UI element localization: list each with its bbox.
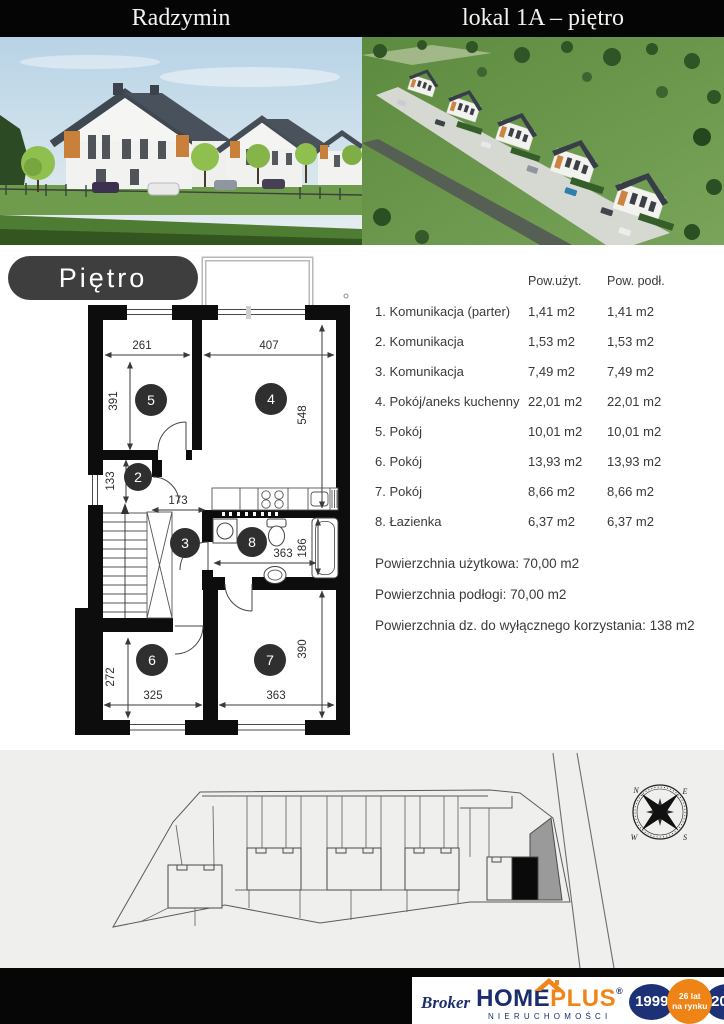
summary-floor-area: Powierzchnia podłogi: 70,00 m2	[375, 587, 566, 602]
compass-w: W	[631, 833, 639, 842]
roof-icon	[534, 978, 564, 991]
cloud	[20, 55, 160, 69]
flyer-page: Radzymin lokal 1A – piętro	[0, 0, 724, 1024]
footer-bar: Broker HOMEPLUS® NIERUCHOMOŚCI 1999 26 l…	[0, 968, 724, 1024]
broker-label: Broker	[421, 993, 470, 1013]
table-row: 8. Łazienka6,37 m26,37 m2	[375, 506, 720, 536]
col-header-uzyt: Pow.użyt.	[528, 274, 607, 288]
summary-usable-area: Powierzchnia użytkowa: 70,00 m2	[375, 556, 579, 571]
aerial-view-photo	[362, 37, 724, 245]
kitchen-sink	[311, 492, 328, 506]
room-5-number: 5	[147, 392, 155, 408]
chimney	[150, 85, 159, 95]
compass-e: E	[682, 787, 688, 796]
plan-marker	[344, 294, 348, 298]
summary-exclusive-area: Powierzchnia dz. do wyłącznego korzystan…	[375, 618, 695, 633]
staircase	[103, 508, 172, 618]
table-row: 7. Pokój8,66 m28,66 m2	[375, 476, 720, 506]
site-plan: N E S W	[0, 750, 724, 968]
col-header-podl: Pow. podł.	[607, 274, 697, 288]
header-location: Radzymin	[0, 0, 362, 37]
header-unit: lokal 1A – piętro	[362, 0, 724, 37]
table-row: 1. Komunikacja (parter)1,41 m21,41 m2	[375, 296, 720, 326]
road	[553, 753, 614, 968]
street-view-photo	[0, 37, 362, 245]
badge-anniversary: 26 lat na rynku	[667, 979, 712, 1024]
room-2-number: 2	[134, 469, 142, 485]
dim-h4: 548	[297, 405, 309, 424]
area-table: Pow.użyt. Pow. podł. 1. Komunikacja (par…	[375, 266, 720, 536]
room-4-number: 4	[267, 391, 275, 407]
dim-w7: 363	[266, 690, 285, 702]
room-3-number: 3	[181, 535, 189, 551]
stairs-up-arrow	[121, 503, 129, 514]
header-bar: Radzymin lokal 1A – piętro	[0, 0, 724, 37]
chimney	[113, 83, 123, 95]
dim-w4: 407	[259, 340, 278, 352]
room-8-number: 8	[248, 534, 256, 550]
registered-mark: ®	[616, 986, 623, 996]
compass-n: N	[632, 786, 639, 795]
site-houses	[168, 818, 562, 908]
dim-w6: 325	[143, 690, 162, 702]
dim-h8: 186	[297, 538, 309, 557]
brand-subtitle: NIERUCHOMOŚCI	[476, 1013, 623, 1021]
room-6-number: 6	[148, 652, 156, 668]
compass-rose: N E S W	[623, 775, 697, 849]
bathroom-sink	[264, 567, 286, 584]
cloud	[160, 67, 340, 87]
dim-h6: 272	[105, 667, 117, 686]
room-7-number: 7	[266, 652, 274, 668]
table-row: 6. Pokój13,93 m213,93 m2	[375, 446, 720, 476]
table-row: 5. Pokój10,01 m210,01 m2	[375, 416, 720, 446]
agency-logo: Broker HOMEPLUS® NIERUCHOMOŚCI 1999 26 l…	[412, 977, 724, 1024]
dim-w8: 363	[273, 548, 292, 560]
compass-s: S	[683, 833, 687, 842]
dim-h5: 391	[108, 391, 120, 410]
anniversary-badges: 1999 26 lat na rynku 2025	[629, 979, 724, 1024]
field	[362, 37, 724, 245]
kitchen-counter	[212, 488, 338, 510]
balcony	[204, 259, 311, 307]
area-table-header: Pow.użyt. Pow. podł.	[375, 266, 720, 296]
dim-w3: 173	[168, 495, 187, 507]
brand-block: HOMEPLUS® NIERUCHOMOŚCI	[476, 987, 623, 1021]
dim-w5: 261	[132, 340, 151, 352]
table-row: 4. Pokój/aneks kuchenny22,01 m222,01 m2	[375, 386, 720, 416]
floor-plan: 261 407 391 548 133 173 363 186 272 325 …	[0, 244, 362, 756]
toilet-bowl	[269, 526, 285, 546]
table-row: 2. Komunikacja1,53 m21,53 m2	[375, 326, 720, 356]
table-row: 3. Komunikacja7,49 m27,49 m2	[375, 356, 720, 386]
dim-h2: 133	[105, 471, 117, 490]
unit-highlight-black	[512, 857, 538, 900]
site-plan-section: N E S W	[0, 750, 724, 968]
dim-h7: 390	[297, 639, 309, 658]
